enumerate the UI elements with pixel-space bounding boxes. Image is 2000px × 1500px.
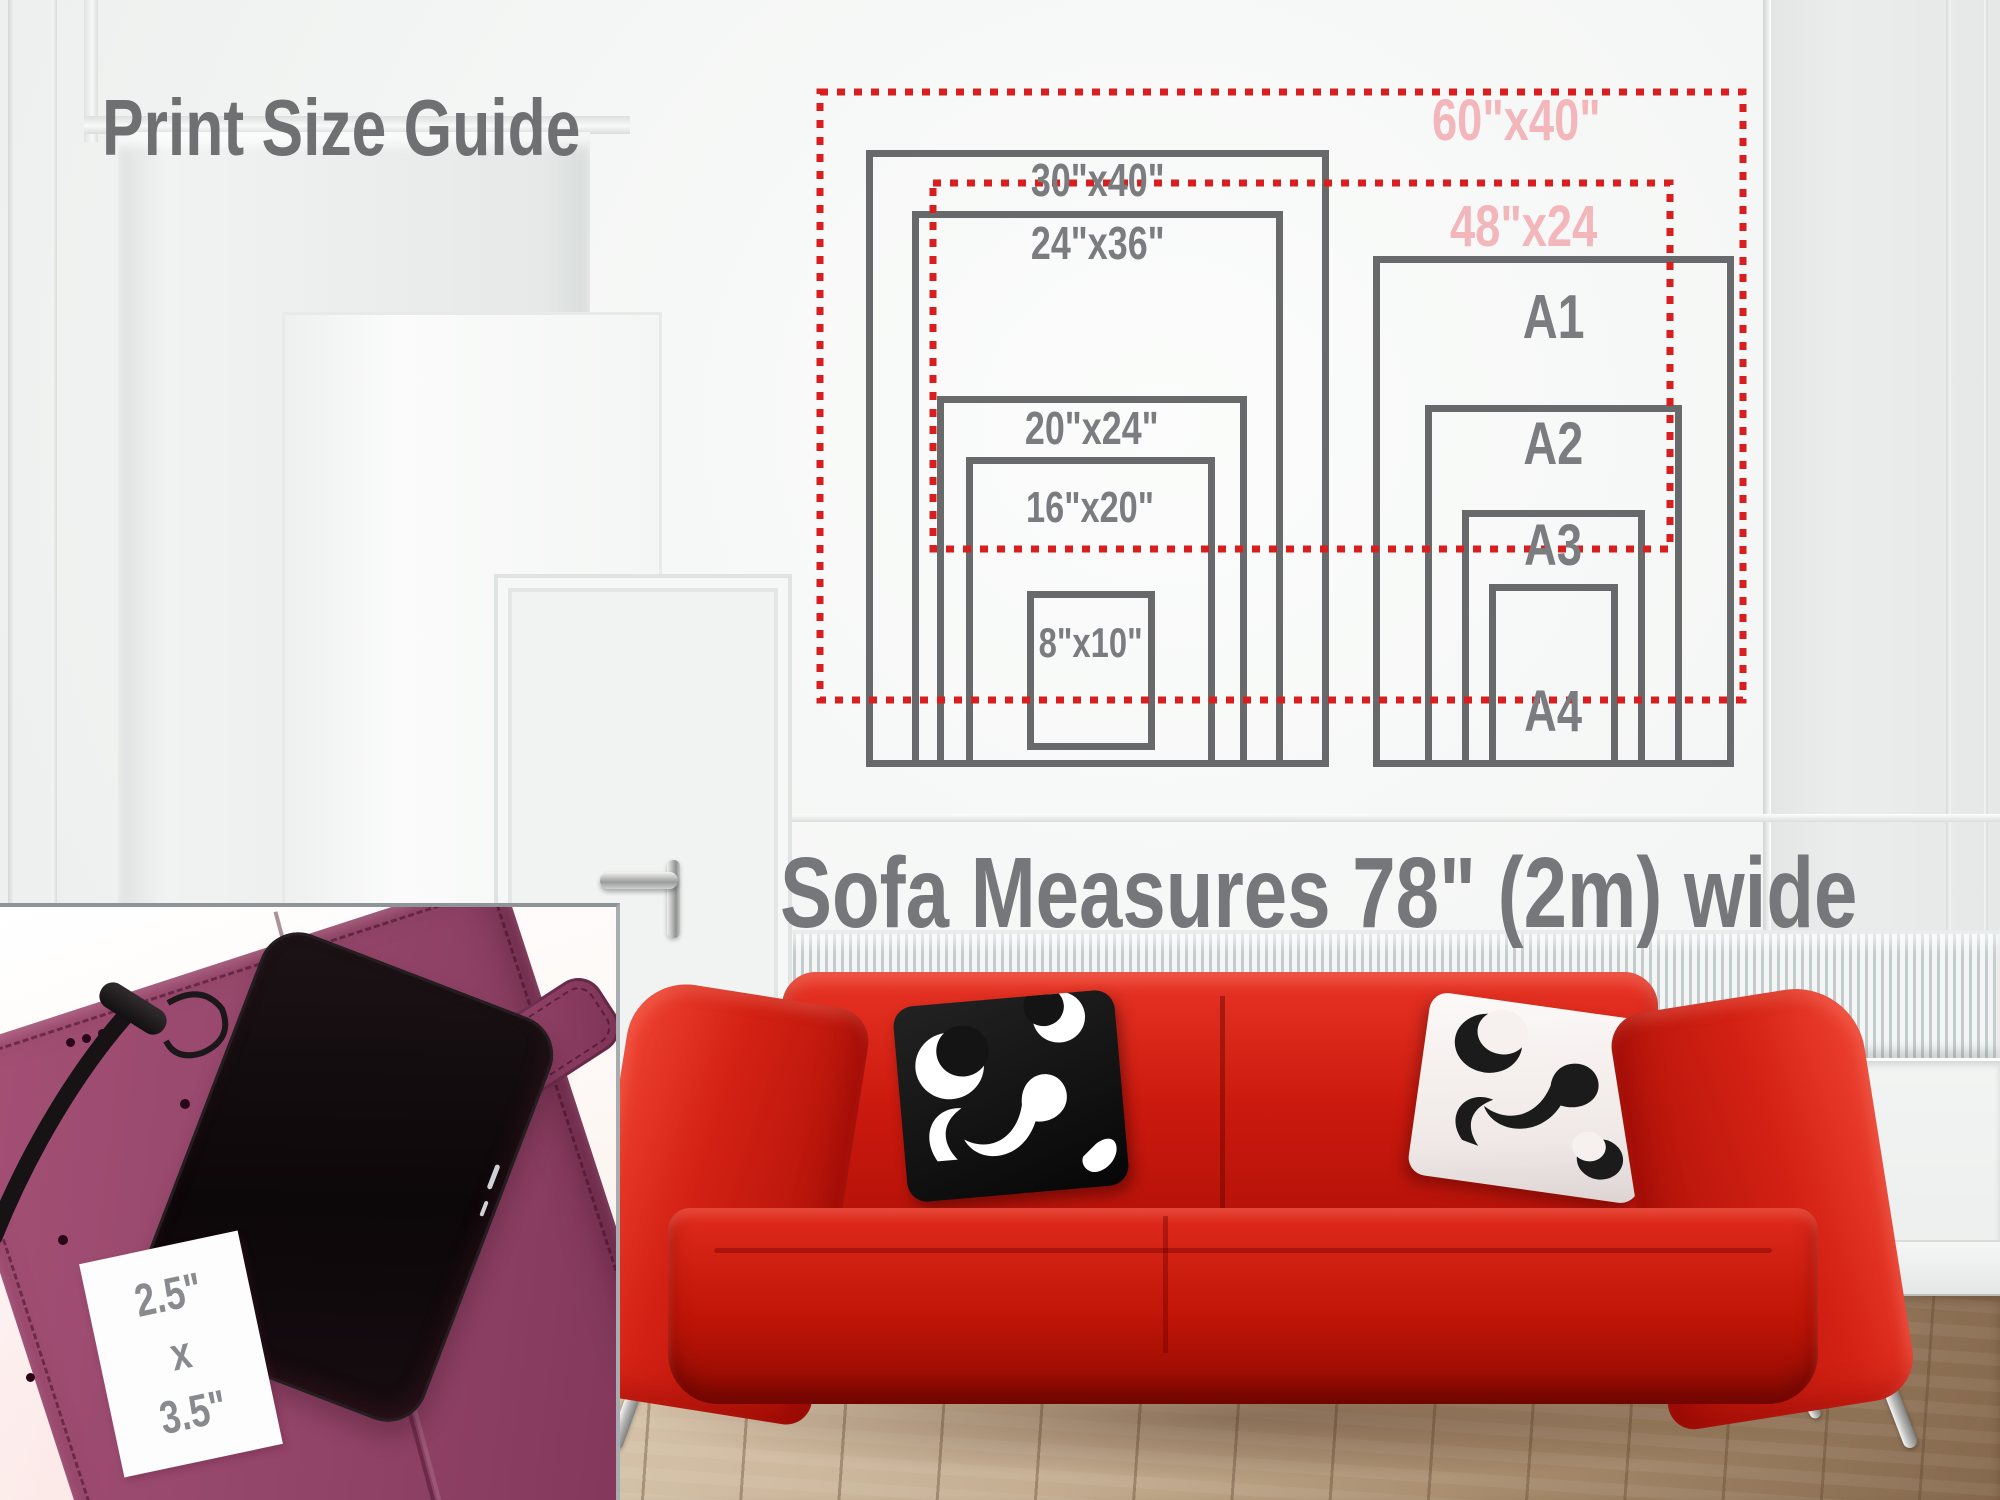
phone-edge-highlight	[487, 1164, 501, 1190]
oversize-label-60x40-text: 60"x40"	[1432, 92, 1601, 150]
oversize-label-48x24-text: 48"x24	[1450, 198, 1597, 256]
oversize-label-48x24: 48"x24	[1450, 198, 1639, 256]
sofa-caption: Sofa Measures 78" (2m) wide	[780, 836, 2000, 951]
pillow-swirl-pattern	[892, 989, 1130, 1204]
card-line-height: 3.5"	[154, 1376, 232, 1448]
card-line-width: 2.5"	[130, 1259, 208, 1331]
print-size-rect-8x10: 8"x10"	[1027, 591, 1155, 750]
print-size-label-a1: A1	[1523, 263, 1585, 349]
inset-photo: 2.5" x 3.5"	[0, 903, 620, 1500]
print-size-label-20x24: 20"x24"	[1025, 403, 1159, 451]
sofa-seat-seam	[1163, 1216, 1168, 1353]
print-size-label-a2: A2	[1524, 412, 1584, 474]
wall-molding	[1984, 0, 1988, 935]
sofa-seat	[668, 1208, 1818, 1404]
phone-edge-highlight	[479, 1200, 488, 1216]
oversize-label-60x40: 60"x40"	[1432, 92, 1648, 150]
page-title-text: Print Size Guide	[102, 82, 580, 174]
print-size-label-a4: A4	[1525, 591, 1583, 741]
wall-molding	[1946, 0, 1951, 935]
print-size-label-16x20: 16"x20"	[1027, 464, 1155, 530]
print-size-guide-scene: Print Size Guide 30"x40" 24"x36" 20"x24"…	[0, 0, 2000, 1500]
door-handle	[600, 872, 678, 889]
card-line-x: x	[165, 1323, 197, 1386]
print-size-label-30x40: 30"x40"	[1031, 157, 1165, 203]
sofa-caption-text: Sofa Measures 78" (2m) wide	[780, 836, 1857, 951]
page-title: Print Size Guide	[102, 82, 715, 174]
black-pattern-pillow	[892, 989, 1130, 1204]
chair-rail-molding	[592, 814, 2000, 822]
sofa-seat-seam	[714, 1248, 1772, 1253]
print-size-label-8x10: 8"x10"	[1039, 598, 1143, 664]
print-size-rect-a4: A4	[1489, 584, 1618, 767]
print-size-label-a3: A3	[1525, 517, 1583, 575]
print-size-label-24x36: 24"x36"	[1031, 218, 1165, 266]
